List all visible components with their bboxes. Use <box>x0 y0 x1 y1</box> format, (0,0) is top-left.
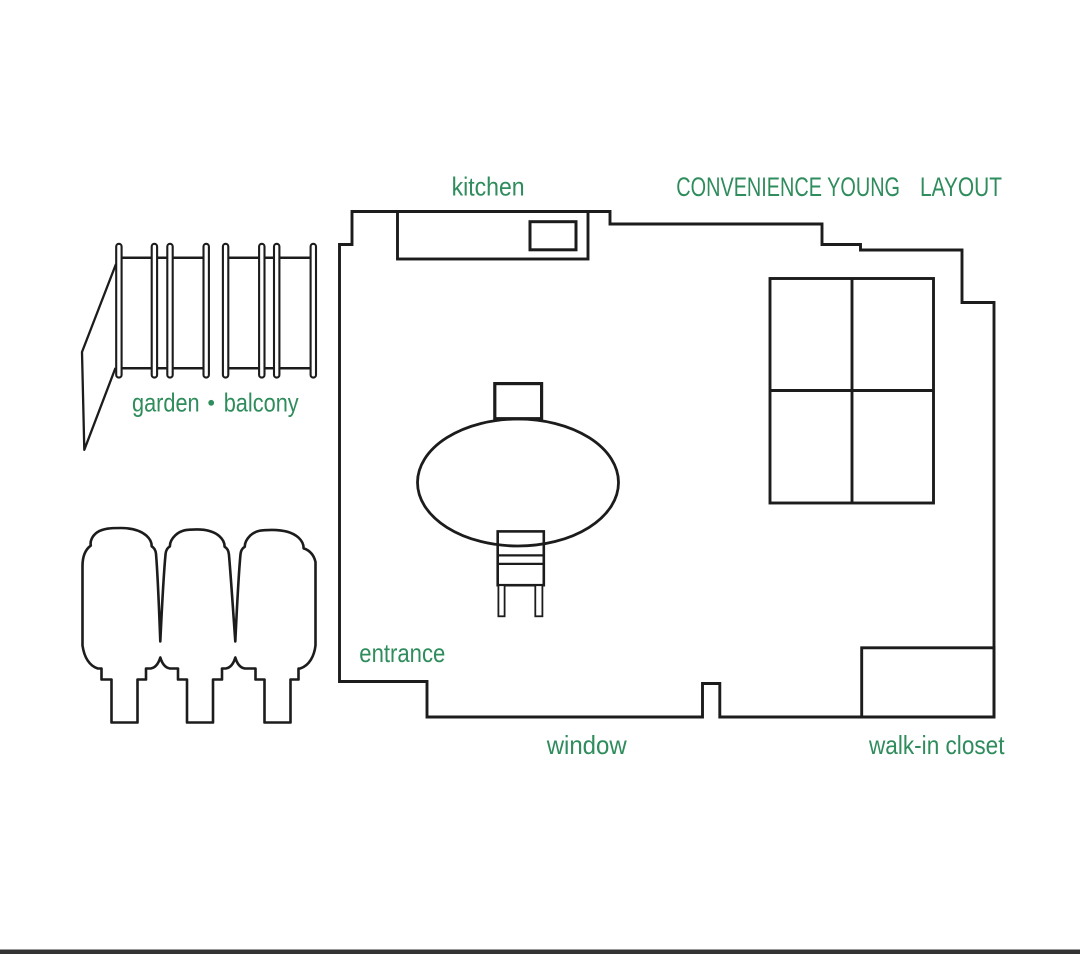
svg-text:kitchen: kitchen <box>452 172 525 202</box>
svg-text:entrance: entrance <box>359 638 445 668</box>
svg-text:garden: garden <box>132 387 200 417</box>
svg-text:window: window <box>546 730 627 760</box>
svg-text:walk-in closet: walk-in closet <box>868 730 1005 760</box>
svg-text:balcony: balcony <box>224 387 299 417</box>
svg-text:LAYOUT: LAYOUT <box>920 172 1002 202</box>
svg-text:CONVENIENCE YOUNG: CONVENIENCE YOUNG <box>676 172 900 202</box>
